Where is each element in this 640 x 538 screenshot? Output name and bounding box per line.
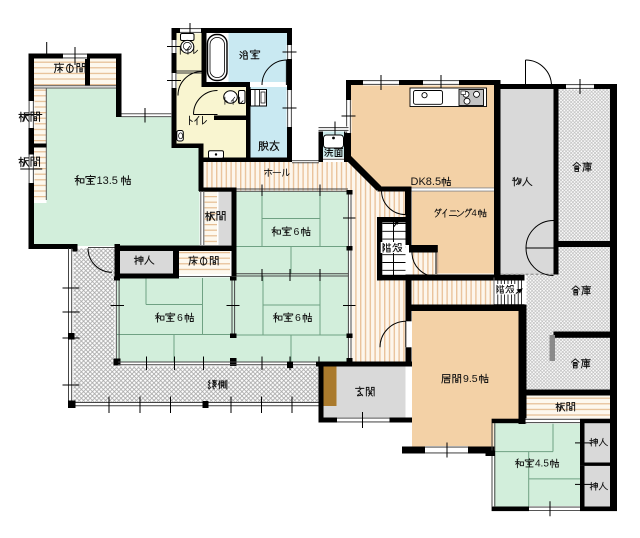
- svg-text:4.5: 4.5: [535, 459, 549, 470]
- svg-text:6: 6: [294, 226, 300, 238]
- svg-text:9.5: 9.5: [463, 373, 478, 385]
- svg-text:6: 6: [295, 312, 301, 324]
- svg-text:4: 4: [472, 208, 477, 219]
- svg-text:13.5: 13.5: [97, 175, 118, 187]
- svg-text:6: 6: [177, 312, 183, 324]
- svg-text:DK8.5: DK8.5: [411, 176, 442, 188]
